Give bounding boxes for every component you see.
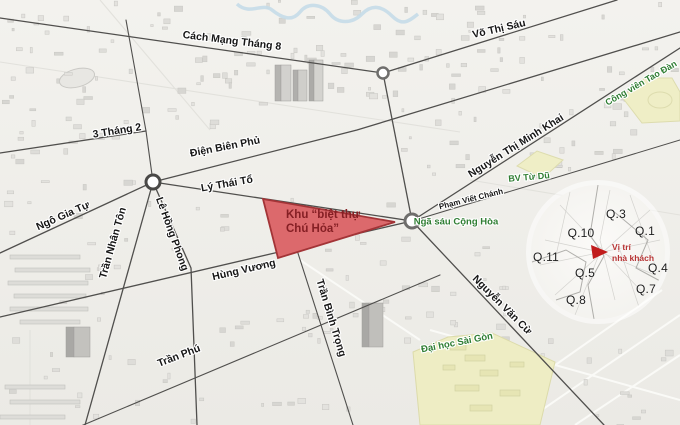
district-label-q1: Q.1 xyxy=(635,224,655,238)
district-label-q3: Q.3 xyxy=(606,207,626,221)
district-label-q8: Q.8 xyxy=(566,293,586,307)
marker-label-vi-tri-nha-khach: Vị trí nhà khách xyxy=(612,242,654,264)
marker-label-line1: Vị trí xyxy=(612,242,654,253)
district-label-q7: Q.7 xyxy=(636,282,656,296)
roundabout-dan-chu xyxy=(378,68,389,79)
zone-label-line2: Chú Hỏa” xyxy=(286,222,360,236)
district-label-q5: Q.5 xyxy=(575,266,595,280)
junction-label-nga-sau-cong-hoa: Ngã sáu Cộng Hòa xyxy=(414,217,498,228)
district-label-q11: Q.11 xyxy=(533,250,559,264)
zone-label-line1: Khu “biệt thự xyxy=(286,208,360,222)
map-canvas: Cách Mạng Tháng 8 Võ Thị Sáu 3 Tháng 2 Đ… xyxy=(0,0,680,425)
marker-label-line2: nhà khách xyxy=(612,253,654,264)
zone-label-chu-hoa: Khu “biệt thự Chú Hỏa” xyxy=(286,208,360,236)
roundabout-nga-bay xyxy=(146,175,160,189)
district-label-q10: Q.10 xyxy=(568,226,595,240)
